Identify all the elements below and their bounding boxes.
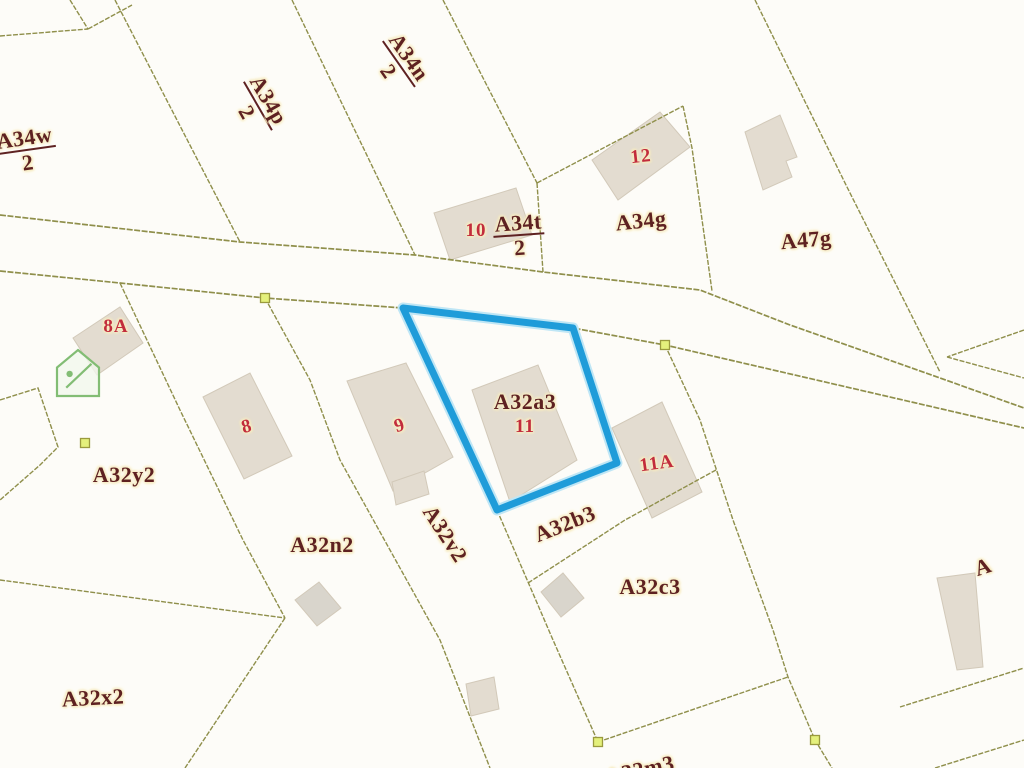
parcel-boundary-line xyxy=(115,0,240,242)
parcel-boundary-line xyxy=(947,357,1024,378)
parcel-boundary-line xyxy=(497,510,598,742)
parcel-boundary-line xyxy=(443,0,537,183)
building-a47g xyxy=(745,115,797,190)
vertex-marker xyxy=(261,294,270,303)
map-canvas xyxy=(0,0,1024,768)
building-11a xyxy=(612,402,702,518)
parcel-boundary-line xyxy=(537,183,543,272)
parcel-boundary-line xyxy=(185,618,285,768)
building-partial-right xyxy=(937,573,983,670)
parcel-boundary-line xyxy=(900,668,1024,707)
parcel-boundary-line xyxy=(683,106,712,291)
parcel-boundary-line xyxy=(292,0,415,255)
building-small-a32n2 xyxy=(295,582,341,626)
vertex-marker xyxy=(594,738,603,747)
parcel-boundary-line xyxy=(70,0,88,29)
parcel-boundary-line xyxy=(665,345,832,768)
building-8 xyxy=(203,373,292,479)
parcel-boundary-line xyxy=(0,29,88,36)
building-10 xyxy=(434,188,532,260)
parcel-boundary-line xyxy=(0,388,58,500)
building-small-strip-bottom xyxy=(466,677,499,716)
parcel-boundary-line xyxy=(88,5,132,29)
parcel-boundary-line xyxy=(265,298,490,768)
building-small-a32c3 xyxy=(541,573,584,617)
building-12 xyxy=(592,112,690,200)
parcel-boundary-line xyxy=(935,740,1024,768)
cadastral-map: A34w2A34p2A34n2A34t210A34gA47g128AA32y28… xyxy=(0,0,1024,768)
parcel-boundary-line xyxy=(598,677,788,742)
vertex-marker xyxy=(661,341,670,350)
vertex-marker xyxy=(81,439,90,448)
parcel-boundary-line xyxy=(755,0,940,372)
vertex-marker xyxy=(811,736,820,745)
parcel-boundary-line xyxy=(0,580,285,618)
parcel-boundary-line xyxy=(947,330,1024,357)
